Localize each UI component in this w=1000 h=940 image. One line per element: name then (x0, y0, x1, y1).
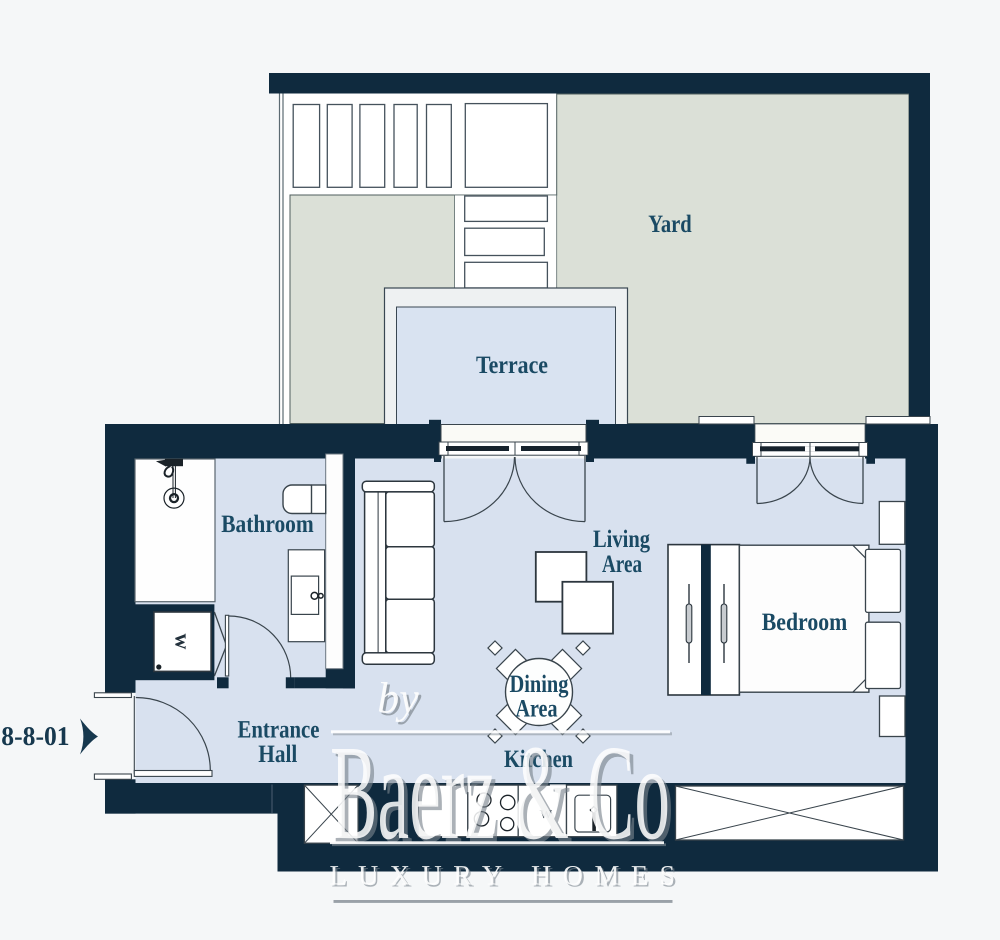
svg-text:Living: Living (593, 526, 650, 553)
svg-text:8-8-01: 8-8-01 (1, 721, 69, 751)
svg-text:Entrance: Entrance (238, 717, 320, 744)
svg-text:Dining: Dining (510, 671, 569, 698)
svg-text:Bathroom: Bathroom (221, 511, 314, 538)
svg-text:Yard: Yard (648, 211, 692, 238)
svg-text:Terrace: Terrace (476, 352, 548, 379)
svg-text:Area: Area (602, 551, 642, 578)
svg-text:by: by (377, 674, 419, 723)
svg-text:w: w (171, 634, 196, 650)
svg-text:Bedroom: Bedroom (762, 609, 848, 636)
svg-text:LUXURY HOMES: LUXURY HOMES (329, 861, 686, 892)
svg-text:Hall: Hall (258, 741, 297, 768)
